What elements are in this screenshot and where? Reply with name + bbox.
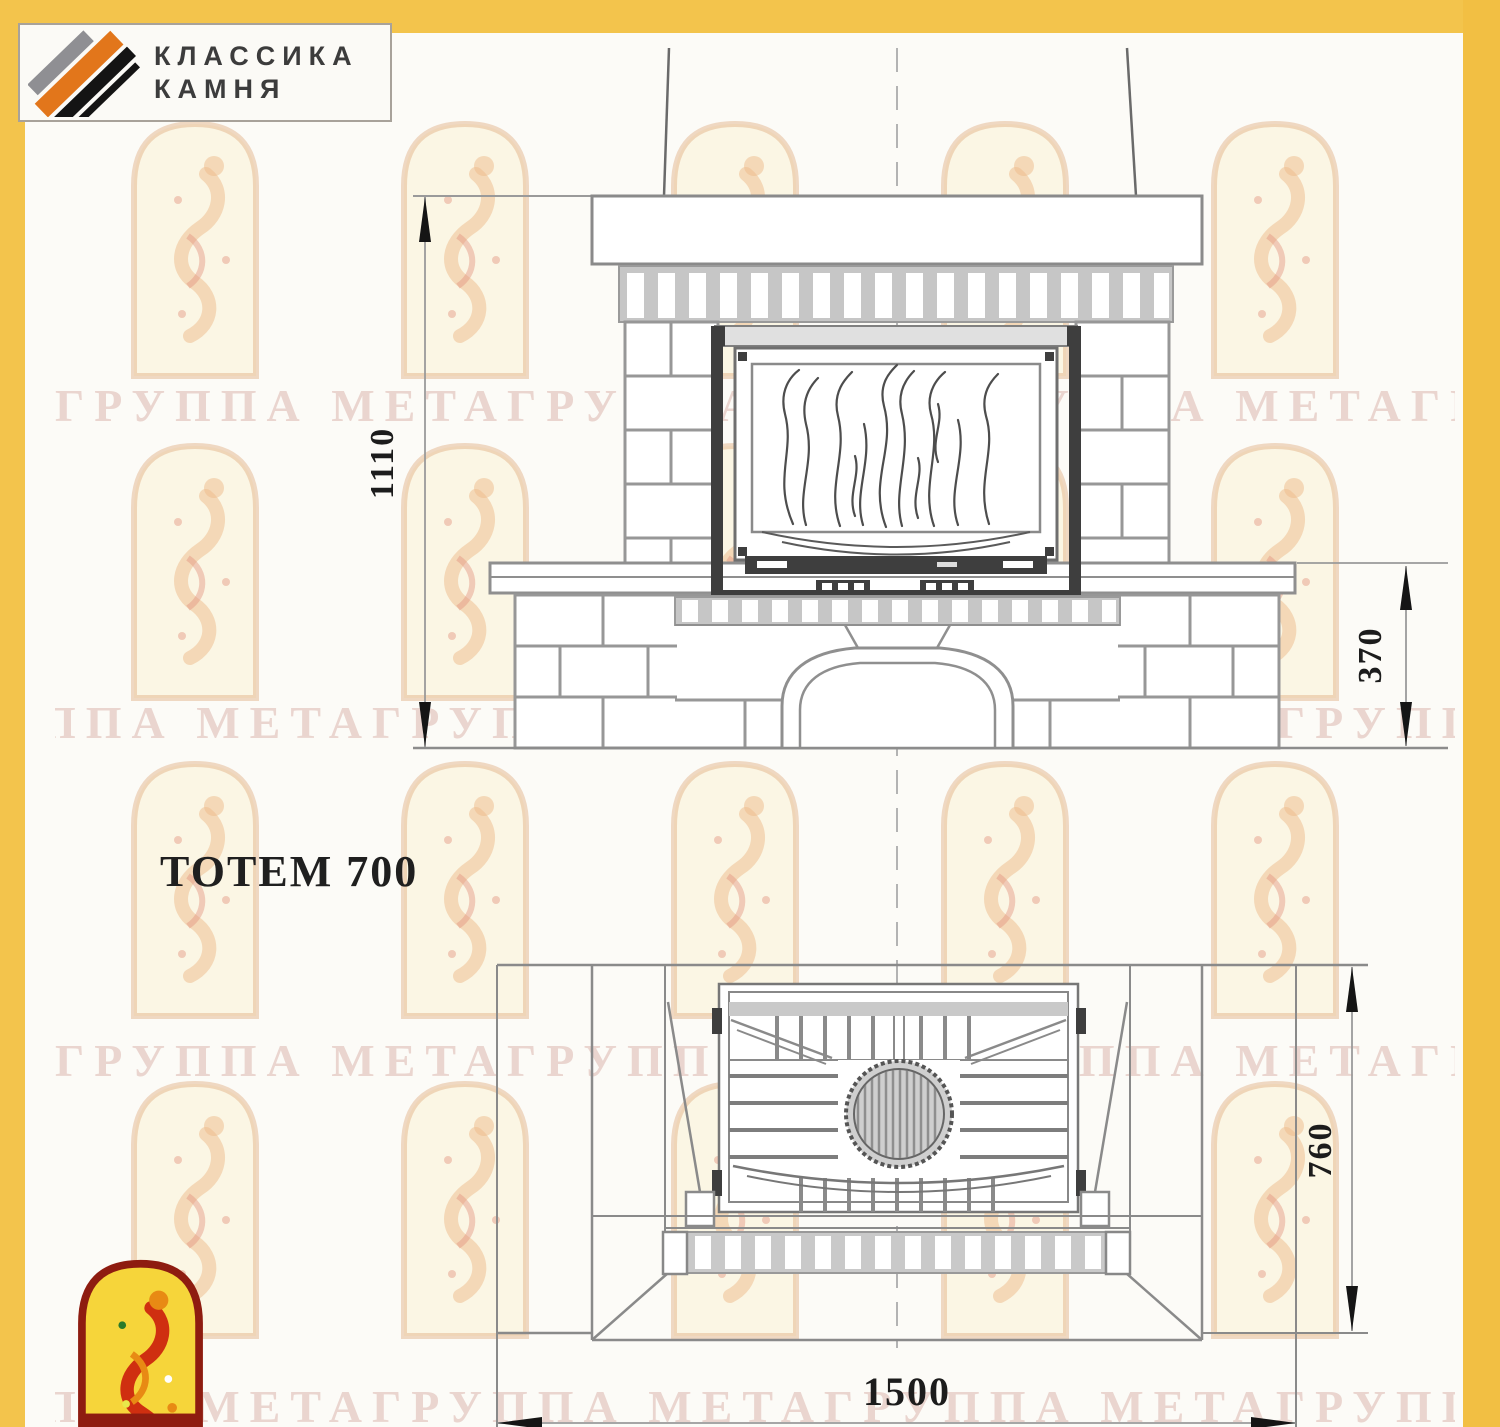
chimney (664, 48, 1136, 196)
brand-stripes-icon (28, 29, 140, 117)
scanned-catalog-page: ГРУППА МЕТАГРУППА МЕТАГРУППА МЕТАГРУППА … (0, 0, 1500, 1427)
firebird-logo (78, 1258, 203, 1427)
dim-label-depth: 760 (1304, 1080, 1338, 1220)
mantel-shelf (592, 196, 1202, 264)
technical-drawing (0, 0, 1500, 1427)
firebox-glass (752, 364, 1040, 532)
dimension-front-height (419, 197, 431, 747)
dimension-width (497, 1417, 1296, 1427)
brand-name-line1: КЛАССИКА (154, 40, 359, 72)
dim-label-plinth-height: 370 (1354, 585, 1388, 725)
plan-firebox-unit (712, 984, 1086, 1212)
left-pier (625, 322, 718, 563)
brand-name-line2: КАМНЯ (154, 73, 359, 105)
brand-logo-box: КЛАССИКА КАМНЯ (18, 23, 392, 122)
right-pier (1076, 322, 1169, 563)
mantel-dentil-course (619, 266, 1173, 322)
plan-front-dentil (663, 1232, 1130, 1274)
firebox (711, 326, 1081, 595)
bench-dentil-course (675, 597, 1120, 625)
model-title: ТОТЕМ 700 (160, 846, 418, 897)
front-view (413, 48, 1448, 748)
flue-collar (846, 1061, 952, 1167)
plan-view (497, 965, 1368, 1427)
dim-label-width: 1500 (827, 1372, 987, 1412)
dimension-depth (1346, 967, 1358, 1331)
dim-label-front-height: 1110 (366, 393, 400, 533)
